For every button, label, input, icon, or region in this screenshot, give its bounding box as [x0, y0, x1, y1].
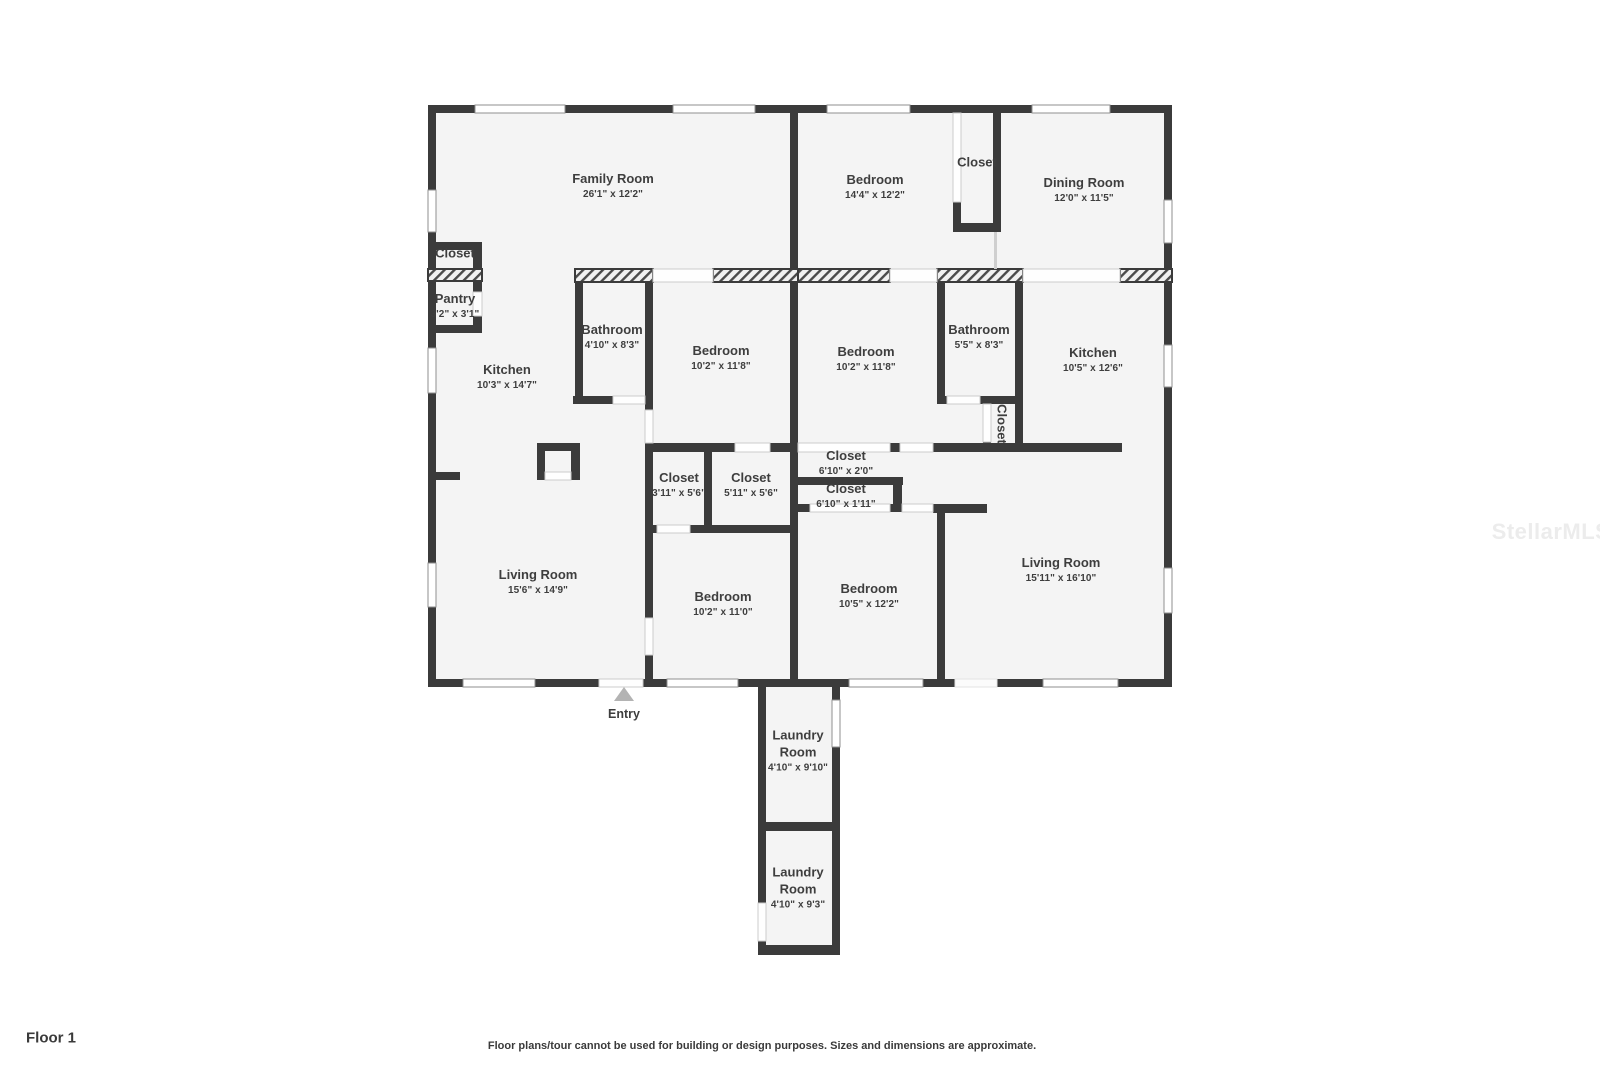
mls-watermark: StellarMLS — [1492, 519, 1600, 545]
disclaimer-text: Floor plans/tour cannot be used for buil… — [488, 1040, 1036, 1052]
floor-plan-page: Family Room 26'1" x 12'2" Bedroom 14'4" … — [0, 0, 1600, 1066]
entry-arrow-icon — [614, 687, 634, 701]
unit-divider-line — [994, 232, 997, 269]
floor-number-label: Floor 1 — [26, 1030, 76, 1047]
floor-plan-drawing — [0, 0, 1600, 1066]
entry-label: Entry — [608, 707, 640, 721]
